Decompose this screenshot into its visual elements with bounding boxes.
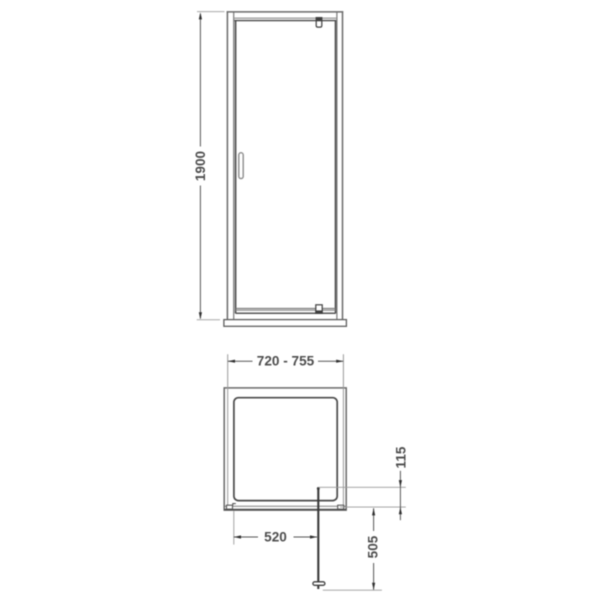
svg-text:520: 520: [264, 530, 287, 545]
svg-text:115: 115: [393, 446, 408, 468]
svg-text:720 - 755: 720 - 755: [257, 354, 315, 369]
svg-text:1900: 1900: [193, 151, 208, 181]
svg-text:505: 505: [366, 535, 381, 558]
